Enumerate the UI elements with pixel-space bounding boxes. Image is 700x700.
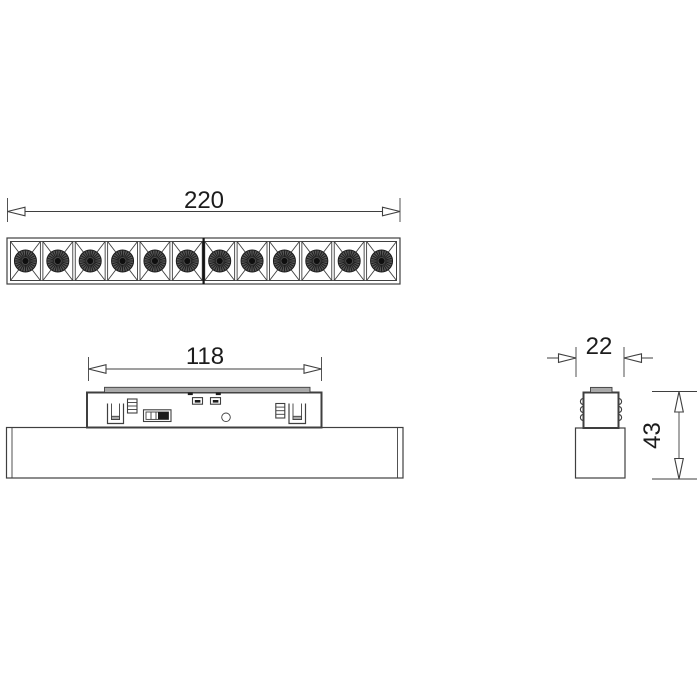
arrow-down-icon [675,459,684,480]
track-rail-strip [105,387,311,392]
clip-pad [293,416,302,419]
terminal-block-right [276,404,285,419]
connector-2 [211,398,221,405]
fixture-body-end [576,428,626,478]
led-cell [75,242,105,281]
led-cell [43,242,73,281]
led-cell [237,242,267,281]
arrow-right-icon [304,365,322,374]
side-view [7,387,404,478]
led-cell [11,242,41,281]
arrow-up-icon [675,392,684,413]
led-cell [269,242,299,281]
selector-switch [144,410,172,422]
adapter-top-cap [591,387,613,392]
track-adapter [87,393,322,428]
dimension-height: 43 [639,392,697,480]
dimension-adapter-length: 118 [89,343,322,381]
arrow-left-icon [89,365,107,374]
dimension-overall-length: 220 [8,187,401,222]
top-view [7,238,400,284]
end-view [576,387,626,478]
clip-pad [112,416,120,419]
technical-drawing: 220 118 [0,0,700,700]
arrow-left-icon [8,207,26,216]
rail-clip-tick [216,393,221,396]
connector-slot [195,400,201,403]
track-adapter-end [584,393,619,429]
connector-1 [193,398,203,405]
led-cell [108,242,138,281]
led-cell [367,242,397,281]
dim-label-height: 43 [639,422,666,449]
drawing-canvas: 220 118 [0,0,700,700]
arrow-right-icon [383,207,401,216]
led-cell [205,242,235,281]
led-cell [140,242,170,281]
led-cell [302,242,332,281]
connector-slot [213,400,219,403]
dimension-width: 22 [547,333,653,377]
led-cell [172,242,202,281]
rail-clip-tick [188,393,193,396]
dim-label-adapter-length: 118 [186,343,224,370]
dim-label-overall-length: 220 [184,187,224,214]
arrow-left-icon [624,354,642,363]
fixture-body-side [7,428,404,479]
led-cell [334,242,364,281]
switch-slider [158,412,169,419]
dim-label-width: 22 [586,333,613,360]
arrow-right-icon [559,354,577,363]
terminal-block-left [128,399,138,413]
